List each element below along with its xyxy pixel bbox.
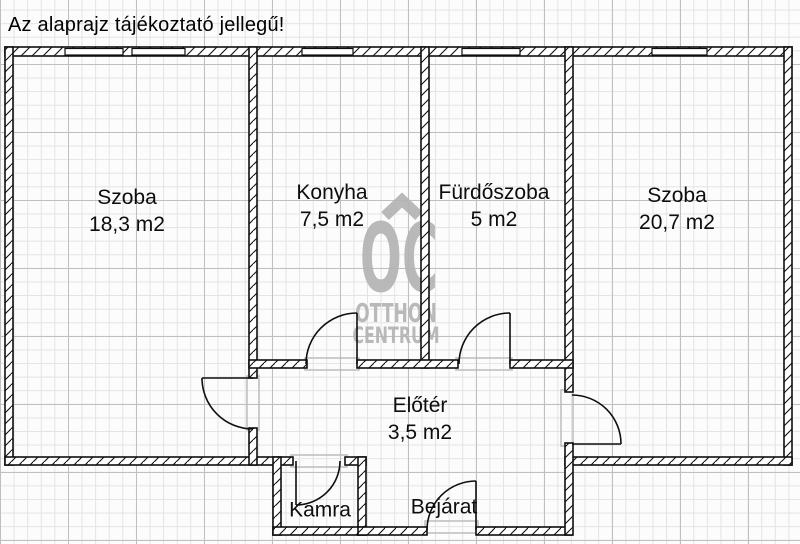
- room-name: Szoba: [89, 184, 165, 211]
- wall-segment: [565, 443, 573, 535]
- door-threshold: [247, 376, 259, 430]
- room-name: Szoba: [639, 182, 715, 209]
- door-symbol-szoba-right: [572, 395, 621, 444]
- room-name: Előtér: [388, 392, 452, 419]
- wall-segment: [273, 457, 281, 535]
- wall-segment: [357, 360, 458, 368]
- window-symbol: [462, 49, 520, 56]
- wall-segment: [5, 47, 13, 465]
- window-symbol: [652, 49, 707, 56]
- wall-segment: [249, 360, 307, 368]
- door-symbol-szoba-left: [202, 378, 253, 429]
- wall-segment: [358, 527, 427, 535]
- room-area: 5 m2: [439, 206, 550, 233]
- wall-segment: [565, 457, 792, 465]
- floorplan-drawing: OC OTTHON CENTRUM: [0, 0, 800, 544]
- door-threshold: [291, 455, 347, 467]
- room-label-szoba-right: Szoba 20,7 m2: [639, 182, 715, 236]
- room-area: 3,5 m2: [388, 419, 452, 446]
- floorplan-canvas: OC OTTHON CENTRUM: [0, 0, 800, 544]
- door-threshold: [456, 358, 512, 370]
- room-label-kamra: Kamra: [289, 497, 351, 524]
- room-label-eloter: Előtér 3,5 m2: [388, 392, 452, 446]
- door-threshold: [561, 390, 573, 446]
- room-name: Konyha: [296, 179, 367, 206]
- wall-segment: [476, 527, 572, 535]
- wall-segment: [358, 457, 366, 535]
- disclaimer-text: Az alaprajz tájékoztató jellegű!: [8, 14, 285, 37]
- door-threshold: [425, 521, 478, 533]
- room-name: Fürdőszoba: [439, 179, 550, 206]
- wall-segment: [784, 47, 792, 465]
- room-label-bejarat: Bejárat: [411, 494, 478, 521]
- door-threshold: [305, 358, 359, 370]
- room-label-furdoszoba: Fürdőszoba 5 m2: [439, 179, 550, 233]
- wall-segment: [421, 47, 429, 368]
- room-area: 18,3 m2: [89, 211, 165, 238]
- room-label-konyha: Konyha 7,5 m2: [296, 179, 367, 233]
- wall-segment: [249, 428, 257, 465]
- room-label-szoba-left: Szoba 18,3 m2: [89, 184, 165, 238]
- wall-segment: [565, 47, 573, 392]
- room-area: 7,5 m2: [296, 206, 367, 233]
- room-area: 20,7 m2: [639, 209, 715, 236]
- window-symbol: [65, 49, 123, 56]
- door-symbol-konyha: [306, 313, 357, 364]
- room-name: Kamra: [289, 497, 351, 524]
- wall-segment: [273, 527, 366, 535]
- wall-segment: [510, 360, 573, 368]
- room-name: Bejárat: [411, 494, 478, 521]
- door-symbol-furdoszoba: [459, 313, 510, 364]
- window-symbol: [302, 49, 353, 56]
- wall-segment: [249, 47, 257, 378]
- window-symbol: [132, 49, 185, 56]
